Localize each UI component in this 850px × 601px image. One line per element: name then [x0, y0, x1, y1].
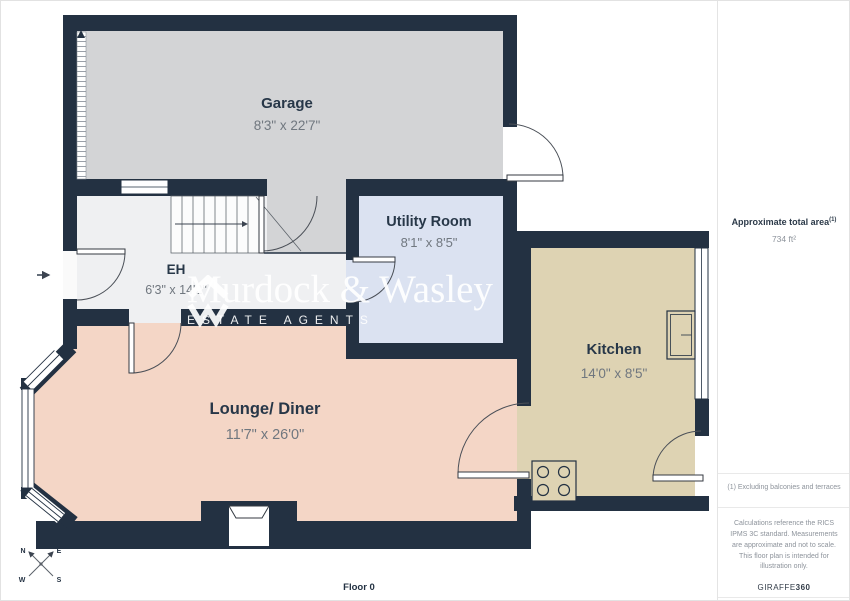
compass-north-label: N — [20, 548, 25, 555]
brand-logo: GIRAFFE360 — [728, 582, 840, 594]
total-area-label: Approximate total area(1) — [718, 217, 850, 227]
svg-text:Lounge/ Diner: Lounge/ Diner — [210, 400, 321, 418]
svg-text:14'0" x 8'5": 14'0" x 8'5" — [581, 366, 648, 381]
disclaimer-block: Calculations reference the RICS IPMS 3C … — [718, 507, 850, 595]
compass: N E W S — [19, 548, 62, 584]
garage-door — [77, 32, 86, 179]
svg-text:Garage: Garage — [261, 95, 313, 112]
svg-text:8'3" x 22'7": 8'3" x 22'7" — [254, 118, 321, 133]
stair-landing-floor — [267, 179, 346, 253]
internal-window — [121, 180, 168, 194]
floorplan-drawing: Garage 8'3" x 22'7" EH 6'3" x 14'2" Util… — [1, 1, 717, 600]
floorplan-canvas: Garage 8'3" x 22'7" EH 6'3" x 14'2" Util… — [1, 1, 717, 600]
svg-text:Utility Room: Utility Room — [386, 214, 471, 230]
compass-south-label: S — [57, 577, 62, 584]
fireplace — [229, 506, 269, 546]
kitchen-counter-unit — [667, 311, 695, 359]
info-sidebar: Approximate total area(1) 734 ft² (1) Ex… — [717, 1, 850, 600]
svg-text:EH: EH — [167, 262, 186, 277]
sidebar-divider — [718, 597, 850, 598]
stove — [532, 461, 576, 501]
kitchen-window — [695, 248, 708, 399]
svg-text:8'1" x 8'5": 8'1" x 8'5" — [401, 235, 458, 250]
svg-text:Kitchen: Kitchen — [586, 341, 641, 358]
bay-window-front — [22, 389, 34, 488]
total-area-value: 734 ft² — [718, 234, 850, 244]
compass-west-label: W — [19, 577, 26, 584]
svg-text:11'7" x 26'0": 11'7" x 26'0" — [226, 427, 304, 443]
total-area-block: Approximate total area(1) 734 ft² — [718, 217, 850, 244]
compass-east-label: E — [57, 548, 62, 555]
floorplan-page: Garage 8'3" x 22'7" EH 6'3" x 14'2" Util… — [0, 0, 850, 601]
disclaimer-text: Calculations reference the RICS IPMS 3C … — [730, 520, 837, 570]
svg-text:6'3" x 14'2": 6'3" x 14'2" — [145, 283, 207, 297]
footnote: (1) Excluding balconies and terraces — [718, 473, 850, 501]
floor-label: Floor 0 — [343, 582, 375, 593]
